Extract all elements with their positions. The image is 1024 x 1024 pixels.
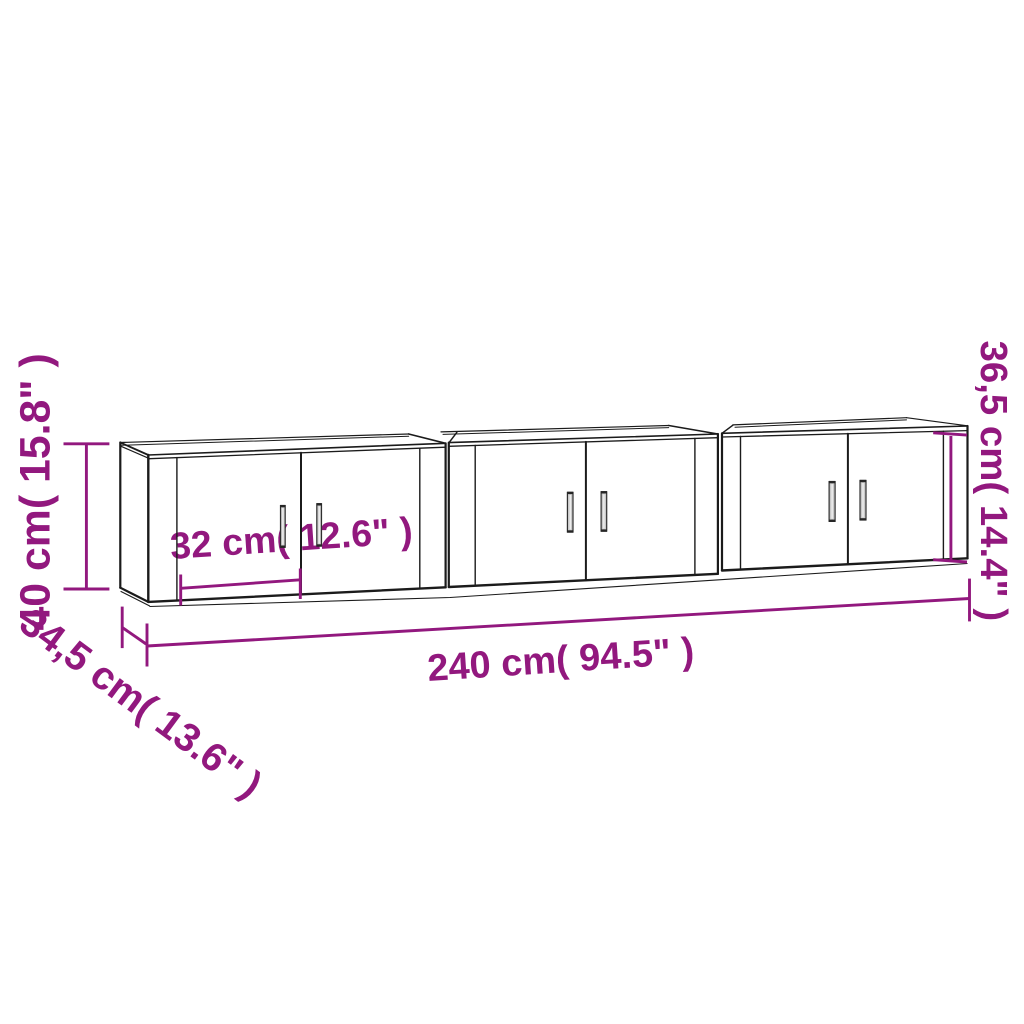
svg-text:40 cm( 15.8" ): 40 cm( 15.8" ) — [12, 353, 60, 630]
svg-text:36,5 cm( 14.4" ): 36,5 cm( 14.4" ) — [972, 341, 1015, 622]
